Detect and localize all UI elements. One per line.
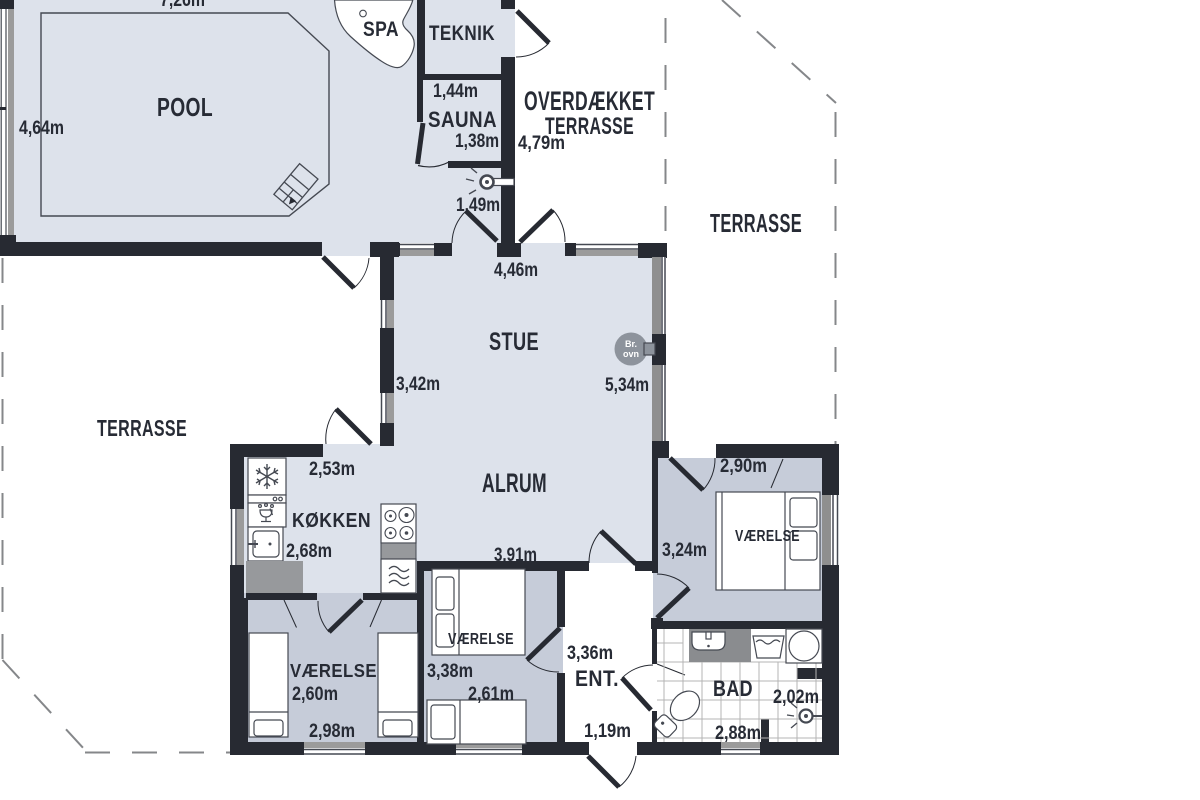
svg-text:3,91m: 3,91m <box>494 545 537 566</box>
svg-text:VÆRELSE: VÆRELSE <box>290 661 377 681</box>
svg-text:BAD: BAD <box>713 676 753 701</box>
svg-text:4,64m: 4,64m <box>19 118 64 139</box>
svg-text:3,38m: 3,38m <box>427 661 473 682</box>
svg-text:2,61m: 2,61m <box>468 684 514 705</box>
svg-text:SPA: SPA <box>363 18 399 41</box>
svg-text:1,49m: 1,49m <box>456 195 500 216</box>
svg-text:ALRUM: ALRUM <box>482 468 547 498</box>
svg-text:ENT.: ENT. <box>575 666 619 691</box>
svg-text:3,24m: 3,24m <box>662 540 707 561</box>
svg-text:TERRASSE: TERRASSE <box>97 415 187 441</box>
svg-text:VÆRELSE: VÆRELSE <box>735 528 800 545</box>
svg-text:2,90m: 2,90m <box>720 456 767 477</box>
svg-text:VÆRELSE: VÆRELSE <box>448 631 514 648</box>
svg-text:TEKNIK: TEKNIK <box>429 22 495 45</box>
svg-text:POOL: POOL <box>157 92 213 122</box>
svg-text:STUE: STUE <box>489 328 539 356</box>
svg-text:2,60m: 2,60m <box>292 684 338 705</box>
svg-text:ovn: ovn <box>623 349 639 359</box>
svg-text:1,19m: 1,19m <box>584 721 631 742</box>
svg-text:OVERDÆKKET: OVERDÆKKET <box>524 86 655 116</box>
svg-text:3,36m: 3,36m <box>567 643 613 664</box>
svg-text:2,68m: 2,68m <box>286 541 332 562</box>
svg-text:TERRASSE: TERRASSE <box>710 208 802 238</box>
svg-text:1,38m: 1,38m <box>455 131 499 152</box>
svg-text:2,88m: 2,88m <box>715 723 761 744</box>
svg-text:KØKKEN: KØKKEN <box>292 510 371 532</box>
svg-text:2,53m: 2,53m <box>309 459 355 480</box>
svg-text:5,34m: 5,34m <box>605 375 649 396</box>
svg-text:SAUNA: SAUNA <box>428 107 497 132</box>
svg-text:Br.: Br. <box>625 339 637 349</box>
svg-text:3,42m: 3,42m <box>396 374 440 395</box>
svg-text:1,44m: 1,44m <box>433 81 478 102</box>
svg-text:2,98m: 2,98m <box>309 721 355 742</box>
svg-text:2,02m: 2,02m <box>773 687 819 708</box>
svg-text:4,46m: 4,46m <box>494 260 538 281</box>
svg-text:7,26m: 7,26m <box>160 0 205 11</box>
svg-text:4,79m: 4,79m <box>518 133 565 154</box>
